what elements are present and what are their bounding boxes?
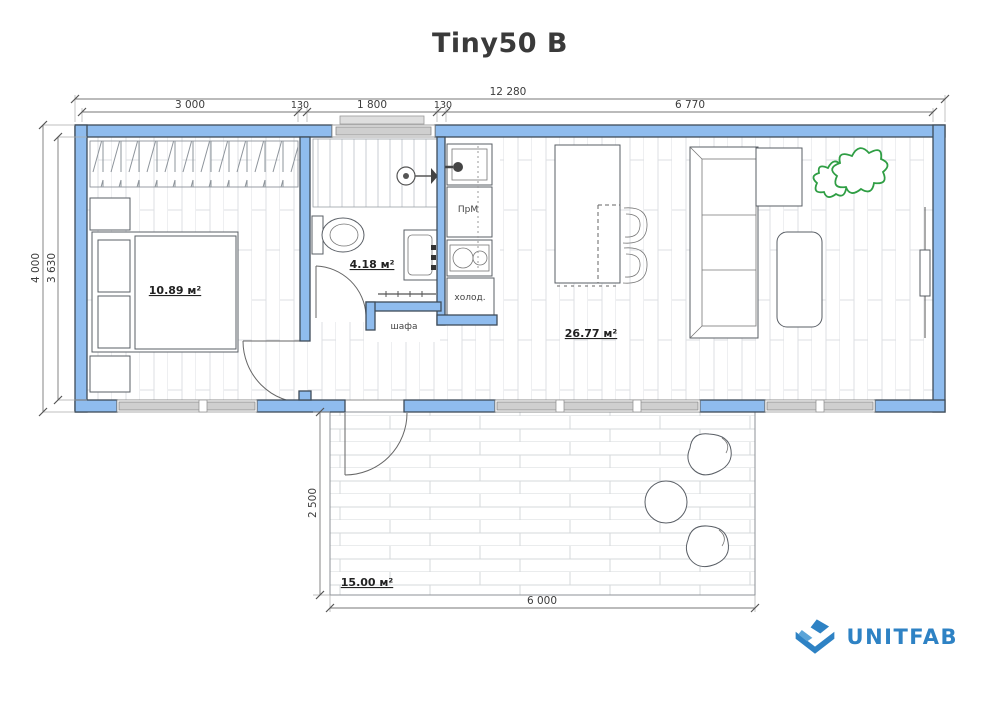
kitchen: ПрМ холод. <box>445 144 494 318</box>
nightstand <box>90 198 130 230</box>
cooktop-icon <box>447 240 492 276</box>
dining-table <box>555 145 620 286</box>
dim-wall: 130 <box>434 100 452 111</box>
dim-bedroom-width: 3 000 <box>175 99 205 111</box>
bedroom-wall <box>300 137 310 341</box>
dim-top-total: 12 280 <box>490 86 527 98</box>
nightstand <box>90 356 130 392</box>
kitchen-sink-icon <box>445 144 492 185</box>
window <box>495 400 700 412</box>
toilet-icon <box>312 216 364 254</box>
shower-zone <box>313 139 437 207</box>
window <box>336 127 431 135</box>
pillow <box>98 296 130 348</box>
kitchen-wall <box>437 137 445 325</box>
pillow <box>98 240 130 292</box>
dim-bath-width: 1 800 <box>357 99 387 111</box>
dim-height-outer: 4 000 <box>30 253 42 283</box>
unitfab-logo-text: UNITFAB <box>847 625 958 649</box>
fridge-label: холод. <box>454 293 485 303</box>
sofa <box>690 147 758 338</box>
washbasin-icon <box>404 230 437 280</box>
dim-terrace-depth: 2 500 <box>307 488 319 518</box>
bathroom-area-label: 4.18 м² <box>350 258 395 271</box>
dim-terrace-width: 6 000 <box>527 595 557 607</box>
window <box>765 400 875 412</box>
coffee-table <box>777 232 822 327</box>
dim-height-inner: 3 630 <box>46 253 58 283</box>
terrace-area-label: 15.00 м² <box>341 576 394 589</box>
prep-module-label: ПрМ <box>458 205 478 215</box>
dim-wall: 130 <box>291 100 309 111</box>
unitfab-logo-icon <box>793 617 837 657</box>
closet-wall <box>366 302 441 311</box>
unitfab-logo: UNITFAB <box>793 617 958 657</box>
window <box>117 400 257 412</box>
wardrobe-label: шафа <box>391 322 418 332</box>
dim-living-width: 6 770 <box>675 99 705 111</box>
bedroom-area-label: 10.89 м² <box>149 284 202 297</box>
floor-plan-drawing: 10.89 м² <box>0 0 1000 707</box>
floor-plan-page: Tiny50 B <box>0 0 1000 707</box>
living-area-label: 26.77 м² <box>565 327 618 340</box>
window-sill <box>340 116 424 124</box>
lounge-chair <box>686 526 728 567</box>
side-table <box>756 148 802 206</box>
terrace <box>330 412 755 595</box>
round-table <box>645 481 687 523</box>
wardrobe-hatch <box>90 141 298 187</box>
